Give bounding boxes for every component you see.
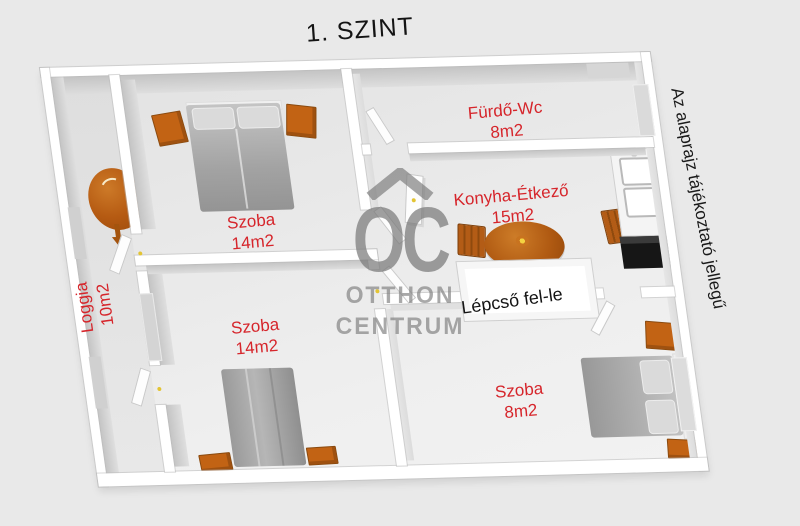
door-bedroom-top xyxy=(373,206,407,245)
pillow xyxy=(645,400,680,435)
room-label-szoba-small: Szoba 8m2 xyxy=(494,378,546,425)
wall-kitchen-bottom xyxy=(383,292,462,304)
room-area: 14m2 xyxy=(232,335,282,360)
nightstand-icon xyxy=(306,446,339,466)
door-handle xyxy=(411,198,416,202)
mattress xyxy=(221,367,307,467)
bathroom-wall-recess xyxy=(586,63,630,79)
room-label-loggia: Loggia 10m2 xyxy=(70,278,119,334)
room-label-furdo: Fürdő-Wc 8m2 xyxy=(467,97,545,146)
floor-plan xyxy=(40,52,709,487)
nightstand-icon xyxy=(286,104,316,139)
table-centerpiece-icon xyxy=(515,235,530,246)
wall-kitchen-bottom xyxy=(595,288,604,298)
room-label-szoba-top: Szoba 14m2 xyxy=(226,209,278,256)
room-area: 8m2 xyxy=(496,399,546,424)
room-label-szoba-bottom-left: Szoba 14m2 xyxy=(230,314,282,361)
pillow xyxy=(191,107,236,130)
door-handle xyxy=(157,387,162,391)
door-handle xyxy=(138,251,143,255)
room-area: 14m2 xyxy=(228,230,278,255)
nightstand-icon xyxy=(151,110,189,146)
bed-icon xyxy=(221,367,307,467)
double-bed-icon xyxy=(157,99,323,215)
door-bathroom xyxy=(365,107,395,145)
page-title: 1. SZINT xyxy=(305,12,415,48)
pillow xyxy=(236,106,281,129)
wall-bath-kitchen xyxy=(362,144,371,154)
door-handle xyxy=(375,289,380,293)
floor-plan-page: OC OTTHON CENTRUM 1. SZINT Az alaprajz t… xyxy=(0,0,800,526)
wall-kitchen-bottom xyxy=(641,286,675,297)
pillow xyxy=(639,360,674,395)
